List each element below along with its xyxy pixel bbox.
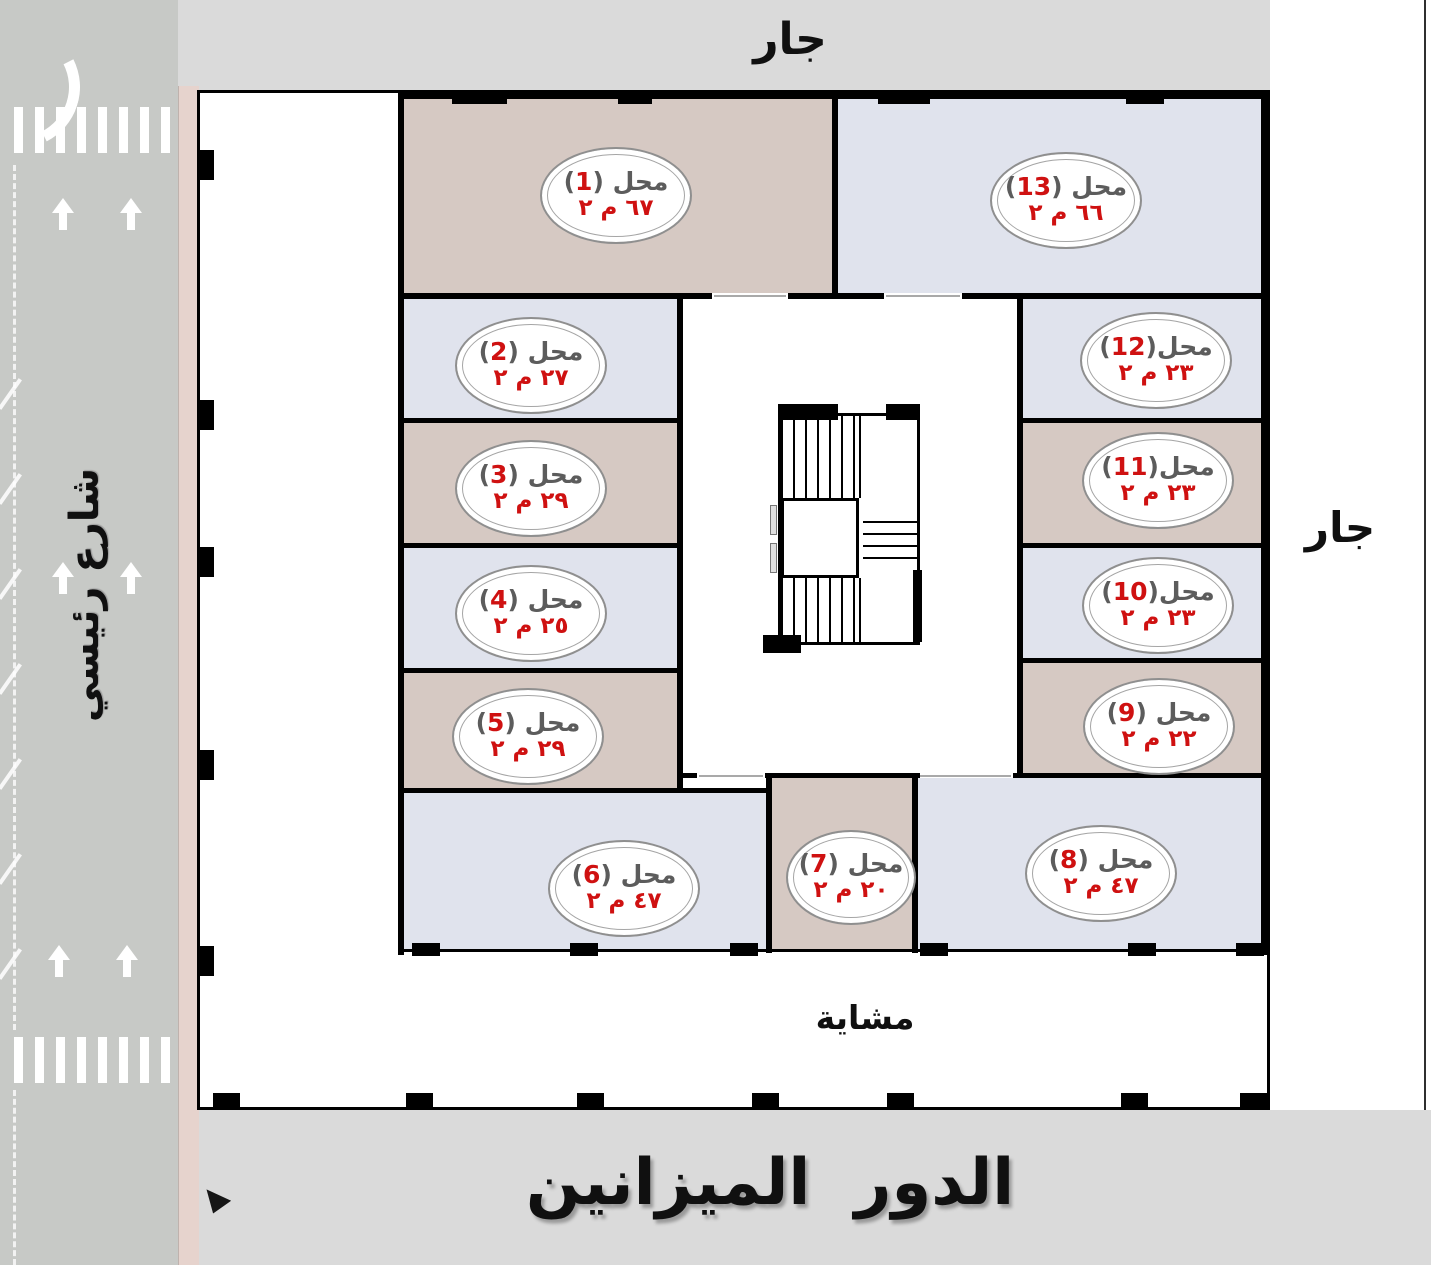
plot-column bbox=[1121, 1093, 1148, 1110]
stair-treads-lower bbox=[781, 578, 861, 642]
wall bbox=[398, 293, 712, 299]
facade-column bbox=[1236, 943, 1264, 956]
shop-12-badge[interactable]: محل(12) ٢٣ م ٢ bbox=[1080, 312, 1232, 409]
plot-column bbox=[197, 750, 214, 780]
stair-wall-block bbox=[913, 570, 922, 642]
plot-column bbox=[197, 150, 214, 180]
plot-column bbox=[406, 1093, 433, 1110]
right-boundary-line bbox=[1424, 0, 1426, 1110]
stair-wall-block bbox=[886, 404, 920, 420]
wall bbox=[1013, 773, 1267, 778]
plot-column bbox=[197, 946, 214, 976]
shop-12-area: ٢٣ م ٢ bbox=[1119, 360, 1194, 388]
facade-column bbox=[618, 91, 652, 104]
road-marking-symbol bbox=[203, 1186, 232, 1215]
wall bbox=[962, 293, 1267, 299]
wall bbox=[398, 418, 683, 423]
facade-column bbox=[878, 91, 930, 104]
road-dashed-line bbox=[13, 165, 16, 1030]
floor-title: الدور الميزانين bbox=[230, 1146, 1310, 1220]
shop-13-badge[interactable]: محل (13) ٦٦ م ٢ bbox=[990, 152, 1142, 249]
road-dashed-line bbox=[13, 1090, 16, 1265]
wall bbox=[1017, 658, 1267, 663]
shop-3-badge[interactable]: محل (3) ٢٩ م ٢ bbox=[455, 440, 607, 537]
wall bbox=[1017, 418, 1267, 423]
wall bbox=[677, 773, 697, 778]
floor-plan-canvas: محل (1) ٦٧ م ٢ محل (13) ٦٦ م ٢ محل (2) ٢… bbox=[0, 0, 1431, 1265]
shop-8-badge[interactable]: محل (8) ٤٧ م ٢ bbox=[1025, 825, 1177, 922]
shop-12-label: محل(12) bbox=[1099, 334, 1212, 360]
shop-2-label: محل (2) bbox=[479, 339, 584, 365]
walkway-label: مشاية bbox=[780, 998, 950, 1037]
shop-11-badge[interactable]: محل(11) ٢٣ م ٢ bbox=[1082, 432, 1234, 529]
shop-4-badge[interactable]: محل (4) ٢٥ م ٢ bbox=[455, 565, 607, 662]
facade-column bbox=[1128, 943, 1156, 956]
facade-column bbox=[1126, 91, 1164, 104]
right-neighbor-area bbox=[1270, 0, 1431, 1110]
plot-column bbox=[752, 1093, 779, 1110]
wall bbox=[766, 773, 772, 953]
crosswalk-bottom bbox=[14, 1037, 174, 1083]
street-label: شارع رئيسي bbox=[50, 465, 120, 725]
shop-7-label: محل (7) bbox=[799, 851, 904, 877]
shop-10-label: محل(10) bbox=[1101, 579, 1214, 605]
wall bbox=[1017, 543, 1267, 548]
shop-9-area: ٢٢ م ٢ bbox=[1122, 726, 1197, 754]
wall bbox=[398, 668, 683, 673]
shop-10-area: ٢٣ م ٢ bbox=[1121, 605, 1196, 633]
shop-4-area: ٢٥ م ٢ bbox=[494, 613, 569, 641]
shop-6-area: ٤٧ م ٢ bbox=[587, 888, 662, 916]
shop-10-badge[interactable]: محل(10) ٢٣ م ٢ bbox=[1082, 557, 1234, 654]
door-threshold bbox=[886, 295, 960, 297]
shop-11-area: ٢٣ م ٢ bbox=[1121, 480, 1196, 508]
road-arrow-icon bbox=[52, 198, 74, 232]
stair-door-jamb bbox=[770, 543, 777, 573]
shop-4-label: محل (4) bbox=[479, 587, 584, 613]
neighbor-label-top: جار bbox=[700, 14, 880, 65]
shop-7-badge[interactable]: محل (7) ٢٠ م ٢ bbox=[786, 830, 916, 925]
shop-8-label: محل (8) bbox=[1049, 847, 1154, 873]
door-threshold bbox=[920, 775, 1011, 777]
shop-9-badge[interactable]: محل (9) ٢٢ م ٢ bbox=[1083, 678, 1235, 775]
plot-column bbox=[887, 1093, 914, 1110]
shop-9-label: محل (9) bbox=[1107, 700, 1212, 726]
shop-6-badge[interactable]: محل (6) ٤٧ م ٢ bbox=[548, 840, 700, 937]
wall bbox=[765, 773, 920, 778]
road-arrow-icon bbox=[120, 198, 142, 232]
road-arrow-icon bbox=[120, 562, 142, 596]
door-threshold bbox=[714, 295, 786, 297]
facade-column bbox=[730, 943, 758, 956]
shop-8-area: ٤٧ م ٢ bbox=[1064, 873, 1139, 901]
staircase bbox=[778, 413, 920, 645]
facade-column bbox=[920, 943, 948, 956]
wall bbox=[1261, 93, 1267, 955]
shop-5-label: محل (5) bbox=[476, 710, 581, 736]
shop-2-area: ٢٧ م ٢ bbox=[494, 365, 569, 393]
shop-3-area: ٢٩ م ٢ bbox=[494, 488, 569, 516]
plot-column bbox=[577, 1093, 604, 1110]
crosswalk-top bbox=[14, 107, 174, 153]
facade-column bbox=[570, 943, 598, 956]
shop-2-badge[interactable]: محل (2) ٢٧ م ٢ bbox=[455, 317, 607, 414]
facade-column bbox=[412, 943, 440, 956]
plot-column bbox=[197, 400, 214, 430]
plot-column bbox=[197, 547, 214, 577]
wall bbox=[832, 93, 838, 299]
stair-treads-upper bbox=[781, 416, 861, 498]
stair-door-jamb bbox=[770, 505, 777, 535]
shop-3-label: محل (3) bbox=[479, 462, 584, 488]
shop-13-label: محل (13) bbox=[1005, 174, 1127, 200]
plot-column bbox=[213, 1093, 240, 1110]
shop-1-badge[interactable]: محل (1) ٦٧ م ٢ bbox=[540, 147, 692, 244]
wall bbox=[398, 93, 404, 955]
wall bbox=[398, 543, 683, 548]
sidewalk-strip bbox=[178, 86, 199, 1265]
neighbor-label-right: جار bbox=[1290, 503, 1390, 552]
wall bbox=[398, 788, 772, 793]
shop-5-area: ٢٩ م ٢ bbox=[491, 736, 566, 764]
plot-column bbox=[1240, 1093, 1267, 1110]
road-arrow-icon bbox=[48, 945, 70, 979]
shop-1-label: محل (1) bbox=[564, 169, 669, 195]
door-threshold bbox=[699, 775, 763, 777]
shop-11-label: محل(11) bbox=[1101, 454, 1214, 480]
shop-1-area: ٦٧ م ٢ bbox=[579, 195, 654, 223]
wall bbox=[1017, 293, 1023, 778]
stair-treads-side bbox=[863, 521, 917, 567]
shop-13-area: ٦٦ م ٢ bbox=[1029, 200, 1104, 228]
shop-6-label: محل (6) bbox=[572, 862, 677, 888]
stair-wall-block bbox=[763, 635, 801, 653]
shop-7-area: ٢٠ م ٢ bbox=[814, 877, 889, 905]
facade-column bbox=[452, 91, 507, 104]
shop-5-badge[interactable]: محل (5) ٢٩ م ٢ bbox=[452, 688, 604, 785]
stair-landing bbox=[781, 498, 859, 578]
stair-wall-block bbox=[778, 404, 838, 420]
road-arrow-icon bbox=[116, 945, 138, 979]
